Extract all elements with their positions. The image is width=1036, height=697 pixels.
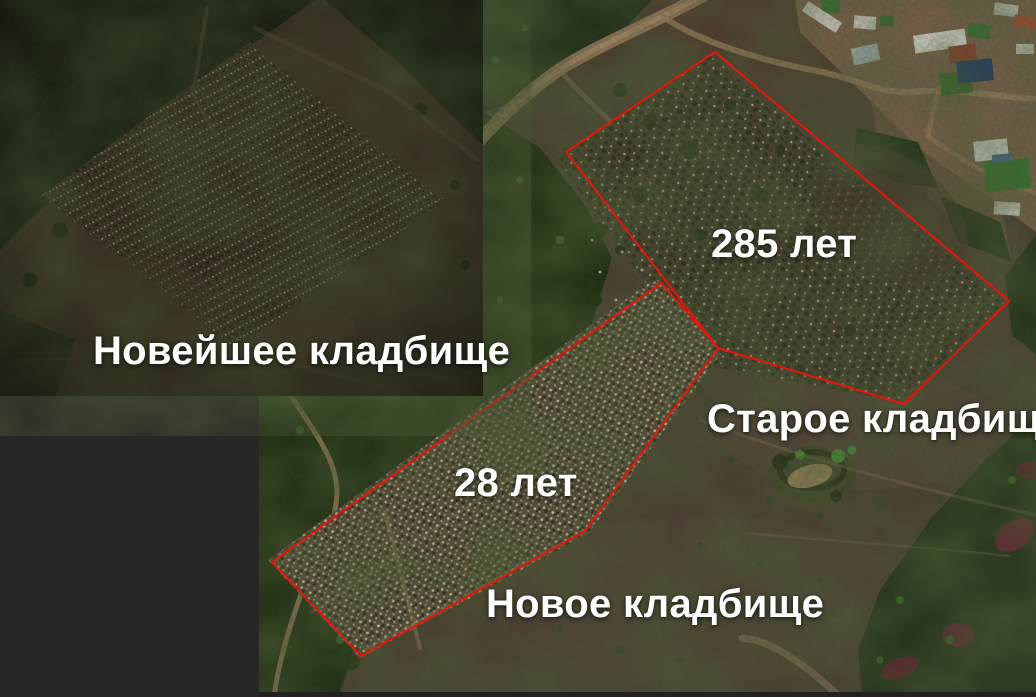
black-mask <box>0 396 259 697</box>
label-new-cemetery: Новое кладбище <box>486 582 824 626</box>
label-newest-cemetery: Новейшее кладбище <box>93 329 510 373</box>
annotated-satellite-screenshot: Новейшее кладбище 285 лет Старое кладбищ… <box>0 0 1036 697</box>
label-old-cemetery-age: 285 лет <box>711 222 857 266</box>
label-new-cemetery-age: 28 лет <box>454 461 578 505</box>
label-old-cemetery: Старое кладбище <box>707 397 1036 441</box>
